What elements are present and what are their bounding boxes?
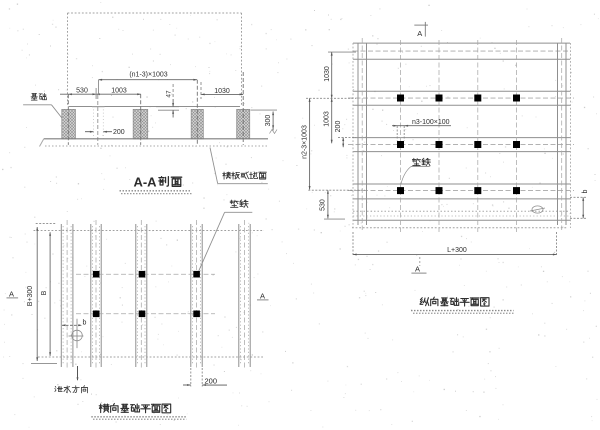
- svg-text:(n1-3)×1003: (n1-3)×1003: [129, 72, 167, 79]
- svg-text:A: A: [415, 264, 420, 273]
- svg-text:A: A: [260, 292, 265, 301]
- svg-text:b: b: [582, 189, 589, 193]
- svg-text:L+300: L+300: [447, 247, 467, 254]
- svg-text:n2-3×1003: n2-3×1003: [301, 125, 308, 159]
- svg-text:530: 530: [320, 199, 327, 211]
- svg-text:B+300: B+300: [27, 286, 34, 307]
- svg-text:B: B: [41, 290, 48, 295]
- svg-text:530: 530: [76, 88, 88, 95]
- svg-text:A: A: [9, 290, 14, 299]
- svg-text:200: 200: [205, 377, 218, 386]
- svg-text:A-A: A-A: [133, 175, 157, 190]
- svg-text:1003: 1003: [111, 88, 127, 95]
- svg-text:200: 200: [113, 129, 125, 136]
- svg-text:b: b: [83, 320, 87, 327]
- svg-text:1030: 1030: [324, 66, 331, 82]
- svg-text:1030: 1030: [214, 88, 230, 95]
- svg-text:300: 300: [265, 115, 272, 127]
- svg-text:200: 200: [335, 121, 342, 133]
- svg-text:47: 47: [166, 90, 173, 98]
- svg-text:1003: 1003: [323, 111, 330, 127]
- svg-text:n3-100×100: n3-100×100: [412, 119, 450, 126]
- svg-text:A: A: [417, 29, 422, 38]
